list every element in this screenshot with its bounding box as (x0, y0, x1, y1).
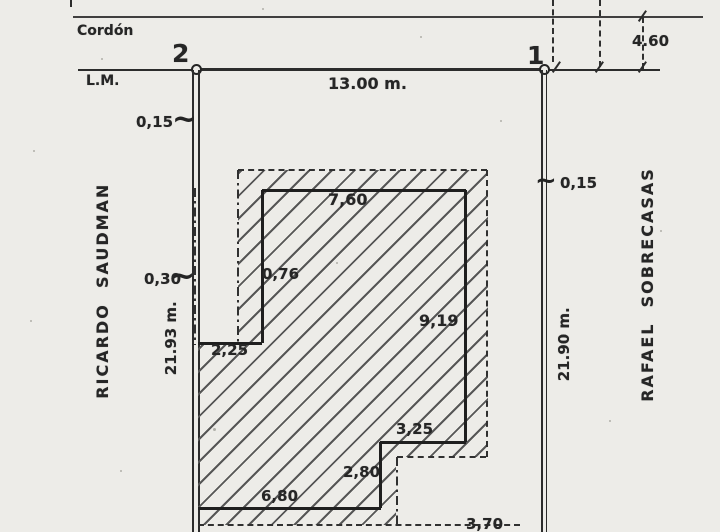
extension-line (552, 0, 554, 62)
building-outline-right (464, 190, 467, 442)
paper-speck (120, 470, 122, 472)
building-notch-width: 2,25 (211, 342, 248, 359)
projection-outline-step-vertical (396, 457, 399, 524)
paper-speck (660, 230, 662, 232)
neighbor-right-name: RAFAEL SOBRECASAS (639, 172, 657, 402)
paper-speck (609, 420, 611, 422)
paper-speck (33, 150, 35, 152)
building-top-width: 7,60 (328, 191, 367, 209)
right-wall-thickness: 0,15 (560, 175, 597, 192)
building-left-offset: 0,76 (262, 266, 299, 283)
building-step-depth: 2,80 (343, 464, 380, 481)
building-right-depth: 9,19 (419, 312, 458, 330)
corner-point-2-label: 2 (172, 40, 189, 68)
building-bottom-width: 6,80 (261, 488, 298, 505)
front-property-line (196, 68, 545, 71)
paper-speck (30, 320, 32, 322)
right-boundary-outer (541, 70, 543, 532)
paper-speck (500, 120, 502, 122)
right-offset-dimension: 4.60 (632, 33, 669, 50)
right-depth-dimension: 21.90 m. (556, 294, 573, 394)
front-dimension: 13.00 m. (328, 75, 407, 93)
building-outline-step-horizontal (380, 441, 466, 444)
curb-edge-mark (70, 0, 72, 7)
extension-line (599, 0, 601, 67)
building-bottom-ext: 3,70 (466, 516, 503, 532)
projection-outline-left (237, 170, 240, 343)
paper-speck (101, 58, 103, 60)
neighbor-left-name: RICARDO SAUDMAN (94, 199, 112, 399)
wall-brace: ~ (172, 105, 197, 135)
left-depth-dimension: 21.93 m. (163, 293, 180, 383)
paper-speck (262, 8, 264, 10)
dimension-tick (638, 61, 647, 73)
building-outline-bottom (198, 507, 381, 510)
dimension-tick (595, 61, 604, 73)
curb-line (73, 16, 703, 18)
projection-outline-right (486, 170, 488, 457)
wall-brace: ~ (535, 168, 557, 194)
left-wall-thickness-top: 0,15 (136, 114, 173, 131)
building-step-width: 3,25 (396, 421, 433, 438)
right-boundary-inner (546, 70, 548, 532)
left-wall-thickness-mid: 0,30 (144, 271, 181, 288)
dimension-tick (552, 61, 561, 73)
paper-speck (420, 36, 422, 38)
municipal-line-label: L.M. (86, 74, 120, 89)
curb-label: Cordón (77, 24, 133, 39)
survey-plan: Cordón L.M. 13.00 m. 2 1 4.60 ~ 0,15 ~ 0… (0, 0, 720, 532)
projection-outline-top (238, 169, 487, 171)
projection-outline-step (397, 456, 486, 458)
